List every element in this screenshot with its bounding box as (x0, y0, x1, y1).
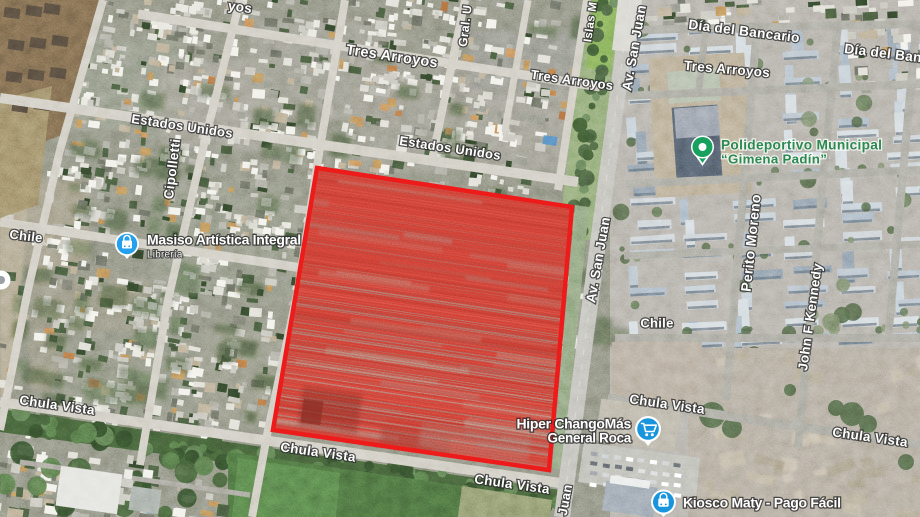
svg-text:Kiosco Maty - Pago Fácil: Kiosco Maty - Pago Fácil (683, 495, 841, 511)
svg-text:“Gimena Padín”: “Gimena Padín” (721, 152, 827, 167)
svg-text:General Roca: General Roca (548, 431, 632, 446)
svg-text:Polideportivo Municipal: Polideportivo Municipal (721, 138, 882, 153)
svg-text:Hiper ChangoMás: Hiper ChangoMás (516, 416, 631, 432)
svg-text:Chile: Chile (640, 315, 673, 330)
svg-text:Masiso Artística Integral: Masiso Artística Integral (147, 232, 301, 248)
svg-text:Librería: Librería (147, 250, 183, 261)
